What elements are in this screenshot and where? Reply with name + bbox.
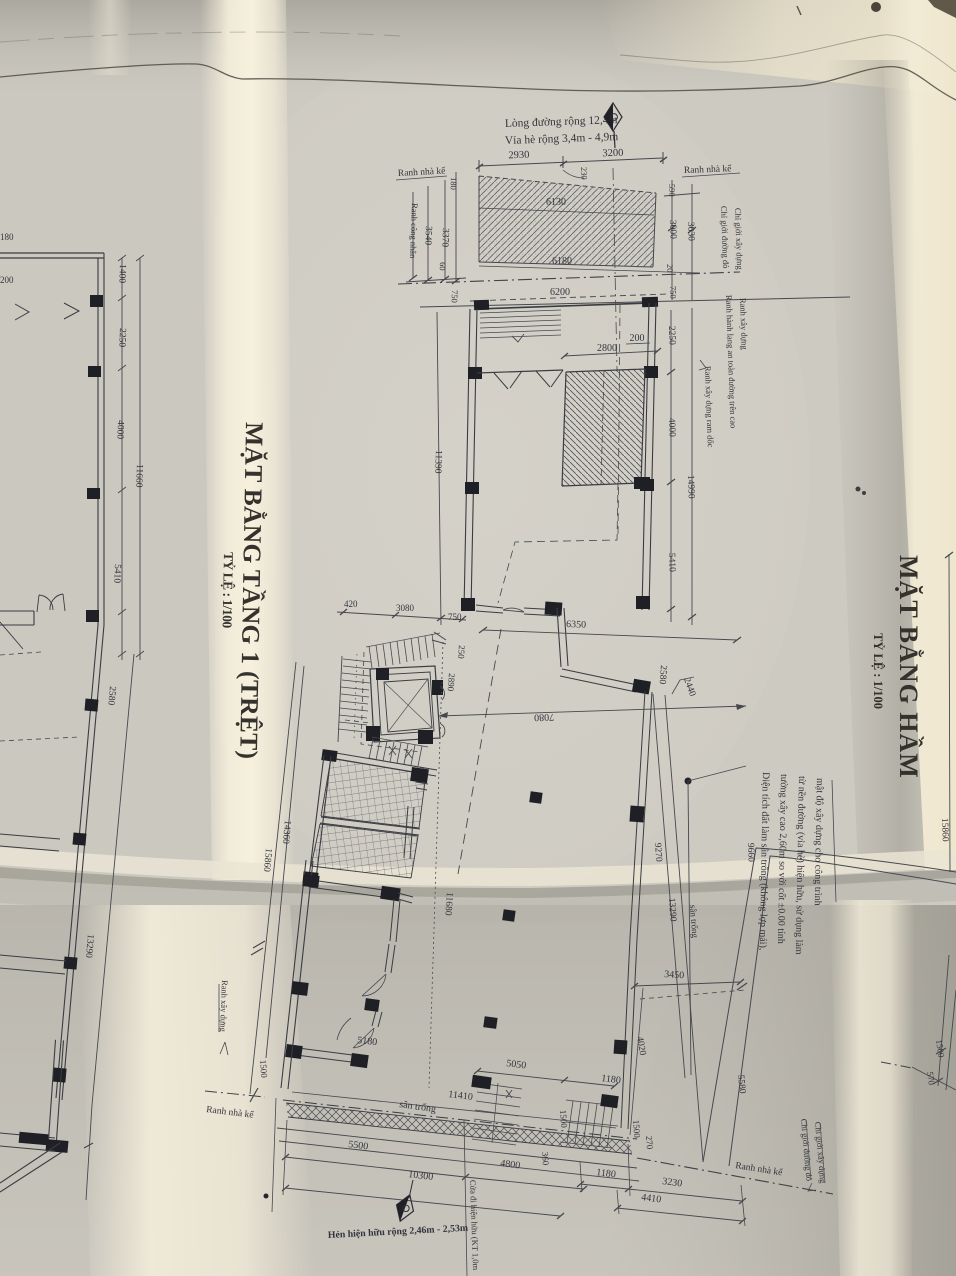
- svg-text:Ranh công nhân: Ranh công nhân: [408, 203, 420, 259]
- svg-text:3000: 3000: [667, 220, 678, 240]
- svg-text:1180: 1180: [601, 1073, 622, 1086]
- svg-text:5050: 5050: [506, 1058, 527, 1071]
- svg-text:9660: 9660: [745, 843, 756, 863]
- svg-text:3450: 3450: [664, 969, 685, 981]
- svg-text:Ranh nhà kể: Ranh nhà kể: [735, 1160, 784, 1178]
- svg-text:270: 270: [644, 1135, 655, 1150]
- svg-text:Lòng đường rộng 12,4m: Lòng đường rộng 12,4m: [505, 114, 618, 130]
- svg-text:250: 250: [456, 645, 467, 660]
- svg-text:2250: 2250: [116, 328, 127, 348]
- svg-text:15860: 15860: [939, 818, 950, 842]
- svg-text:2580: 2580: [657, 665, 668, 685]
- svg-text:2580: 2580: [105, 686, 117, 706]
- svg-text:10300: 10300: [408, 1169, 434, 1183]
- svg-text:180: 180: [449, 177, 459, 190]
- svg-text:7080: 7080: [534, 711, 554, 723]
- svg-text:Ranh xây dựng: Ranh xây dựng: [218, 980, 230, 1033]
- svg-text:5410: 5410: [111, 564, 122, 584]
- svg-text:4000: 4000: [666, 418, 677, 438]
- svg-text:MẶT BẰNG HẦM: MẶT BẰNG HẦM: [894, 555, 923, 779]
- svg-text:11680: 11680: [442, 892, 454, 916]
- svg-text:Vỉa hè rộng 3,4m - 4,9m: Vỉa hè rộng 3,4m - 4,9m: [505, 131, 619, 147]
- svg-text:13290: 13290: [666, 898, 678, 923]
- svg-text:200: 200: [0, 275, 14, 285]
- svg-text:750: 750: [448, 612, 462, 622]
- svg-text:3030: 3030: [685, 222, 696, 242]
- svg-text:9270: 9270: [652, 843, 663, 863]
- svg-text:2800: 2800: [597, 343, 617, 354]
- svg-text:750: 750: [668, 286, 678, 299]
- svg-text:Chỉ giới đường đỏ: Chỉ giới đường đỏ: [719, 206, 731, 269]
- svg-text:14360: 14360: [280, 820, 292, 845]
- svg-text:570: 570: [925, 1071, 937, 1086]
- svg-text:15860: 15860: [261, 848, 273, 873]
- svg-text:3200: 3200: [602, 148, 623, 160]
- svg-text:mật độ xây dựng cho công trình: mật độ xây dựng cho công trình: [812, 778, 825, 906]
- svg-text:230: 230: [579, 167, 589, 180]
- svg-text:360: 360: [540, 1151, 551, 1166]
- svg-text:20: 20: [665, 264, 675, 273]
- svg-text:Ranh xây dựng: Ranh xây dựng: [738, 298, 750, 351]
- svg-text:5580: 5580: [735, 1074, 747, 1094]
- svg-text:Diện tích đất làm sân trống (k: Diện tích đất làm sân trống (không lợp m…: [757, 772, 771, 950]
- svg-text:3370: 3370: [439, 228, 450, 248]
- svg-text:2890: 2890: [446, 673, 457, 692]
- svg-text:6200: 6200: [550, 287, 570, 298]
- svg-text:60: 60: [438, 262, 448, 271]
- svg-text:Ranh nhà kể: Ranh nhà kể: [206, 1104, 255, 1121]
- svg-text:6350: 6350: [566, 619, 586, 631]
- svg-text:13290: 13290: [83, 934, 95, 959]
- svg-text:11410: 11410: [448, 1089, 474, 1103]
- svg-text:5500: 5500: [348, 1139, 369, 1152]
- svg-text:TỶ LỆ : 1/100: TỶ LỆ : 1/100: [871, 633, 885, 709]
- svg-text:3230: 3230: [662, 1176, 683, 1189]
- svg-text:4410: 4410: [641, 1192, 662, 1205]
- svg-text:Ranh xây dựng ram dốc: Ranh xây dựng ram dốc: [703, 366, 716, 448]
- svg-text:6180: 6180: [552, 256, 572, 267]
- svg-text:từ nền đường (vỉa hè) hiện hữu: từ nền đường (vỉa hè) hiện hữu, sử dụng …: [793, 776, 807, 955]
- svg-text:200: 200: [630, 333, 645, 344]
- svg-text:2930: 2930: [508, 150, 529, 162]
- svg-text:1400: 1400: [116, 264, 127, 284]
- svg-text:sân trống: sân trống: [399, 1099, 437, 1115]
- svg-text:590: 590: [667, 184, 677, 197]
- svg-text:Cửa đi hiện hữu (KT 1,0m: Cửa đi hiện hữu (KT 1,0m: [468, 1180, 481, 1271]
- svg-text:5410: 5410: [666, 553, 677, 573]
- svg-text:11390: 11390: [432, 450, 443, 474]
- svg-text:5180: 5180: [357, 1035, 378, 1048]
- svg-text:6130: 6130: [546, 197, 566, 208]
- svg-text:1500: 1500: [631, 1119, 642, 1138]
- svg-text:1500: 1500: [258, 1059, 269, 1078]
- svg-text:4800: 4800: [500, 1158, 521, 1171]
- svg-text:750: 750: [450, 290, 460, 303]
- svg-text:1180: 1180: [596, 1167, 617, 1180]
- svg-text:4020: 4020: [634, 1036, 647, 1057]
- svg-text:420: 420: [344, 599, 358, 609]
- svg-text:TỶ LỆ : 1/100: TỶ LỆ : 1/100: [220, 552, 236, 629]
- svg-text:14990: 14990: [685, 475, 696, 499]
- svg-text:3540: 3540: [422, 226, 433, 246]
- svg-text:180: 180: [0, 232, 14, 242]
- svg-text:Ranh hành lang an toàn đường t: Ranh hành lang an toàn đường trên cao: [724, 295, 739, 429]
- svg-text:1500: 1500: [558, 1109, 569, 1128]
- svg-text:MẶT BẰNG TẦNG 1 (TRỆT): MẶT BẰNG TẦNG 1 (TRỆT): [234, 422, 269, 760]
- svg-text:2250: 2250: [666, 326, 677, 346]
- svg-text:2440: 2440: [681, 677, 697, 699]
- svg-text:Chỉ giới xây dựng: Chỉ giới xây dựng: [733, 208, 745, 271]
- svg-text:tường xây cao 2,60m so với cốt: tường xây cao 2,60m so với cốt ±0.00 tín…: [775, 774, 789, 944]
- svg-text:3080: 3080: [396, 603, 415, 613]
- svg-text:11660: 11660: [133, 464, 144, 488]
- svg-text:Hẻn hiện hữu rộng 2,46m - 2,53: Hẻn hiện hữu rộng 2,46m - 2,53m: [328, 1223, 469, 1241]
- svg-text:4000: 4000: [114, 420, 125, 440]
